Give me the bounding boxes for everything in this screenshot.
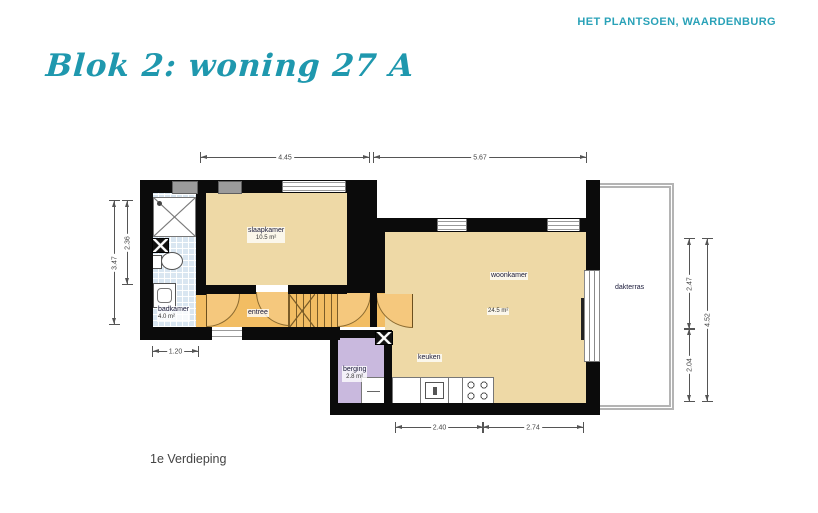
room-label-keuken: keuken: [417, 354, 442, 362]
page-title: Blok 2: woning 27 A: [45, 48, 416, 84]
dimension-value: 3.47: [111, 254, 118, 272]
room-label-berging: berging 2.8 m²: [342, 366, 367, 382]
dimension-top-left: 4.45: [200, 152, 370, 163]
floor-label: 1e Verdieping: [150, 452, 226, 466]
wall: [242, 327, 340, 340]
vent-box-icon: [152, 238, 169, 253]
sliding-door-panel: [581, 298, 584, 340]
terrace-sliding-door: [584, 270, 600, 362]
room-area: 24.5 m²: [488, 308, 508, 315]
dimension-value: 5.67: [471, 154, 489, 161]
dimension-value: 1.20: [167, 348, 185, 355]
window: [547, 219, 580, 231]
dakterras-terrace: [598, 183, 674, 410]
room-name: slaapkamer: [248, 227, 284, 234]
wall: [330, 403, 598, 415]
dimension-badkamer-width: 1.20: [152, 346, 199, 357]
room-area: 4.0 m²: [158, 314, 189, 321]
meter-box-icon: [375, 331, 393, 345]
room-area: 2.8 m²: [343, 374, 366, 381]
dimension-right-outer: 4.52: [702, 238, 713, 402]
room-area-woonkamer: 24.5 m²: [487, 308, 509, 315]
entrance-door-opening: [212, 328, 242, 339]
dimension-value: 4.45: [276, 154, 294, 161]
window: [282, 181, 346, 192]
room-label-woonkamer: woonkamer: [490, 272, 528, 280]
dimension-left-inner: 2.36: [122, 200, 133, 285]
dimension-bottom-left: 2.40: [395, 422, 484, 433]
room-label-badkamer: badkamer 4.0 m²: [157, 306, 190, 322]
window: [172, 181, 198, 194]
dimension-bottom-right: 2.74: [482, 422, 584, 433]
wall: [330, 330, 338, 403]
dimension-left-outer: 3.47: [109, 200, 120, 325]
wall: [140, 327, 212, 340]
kitchen-sink-icon: [421, 378, 449, 404]
window: [218, 181, 242, 194]
dimension-top-right: 5.67: [373, 152, 587, 163]
room-name: berging: [343, 366, 366, 373]
wall: [586, 180, 600, 270]
floorplan-page: HET PLANTSOEN, WAARDENBURG Blok 2: wonin…: [0, 0, 818, 513]
dimension-value: 2.04: [686, 356, 693, 374]
stove-burners-icon: [463, 378, 493, 404]
dimension-value: 4.52: [704, 311, 711, 329]
room-label-entree: entree: [247, 309, 269, 317]
kitchen-counter: [392, 377, 494, 405]
room-name: keuken: [418, 354, 441, 361]
dimension-value: 2.40: [431, 424, 449, 431]
room-name: woonkamer: [491, 272, 527, 279]
shower-icon: [153, 197, 196, 237]
dimension-value: 2.36: [124, 234, 131, 252]
window: [437, 219, 467, 231]
dimension-right-bottom: 2.04: [684, 328, 695, 402]
counter-section: [449, 378, 463, 404]
room-label-slaapkamer: slaapkamer 10.5 m²: [247, 227, 285, 243]
wall: [140, 180, 153, 340]
counter-section: [393, 378, 421, 404]
washbasin-icon: [153, 283, 176, 308]
room-area: 10.5 m²: [248, 235, 284, 242]
room-label-dakterras: dakterras: [614, 284, 645, 292]
wall: [196, 192, 206, 295]
room-name: badkamer: [158, 306, 189, 313]
wall: [288, 285, 347, 294]
project-name: HET PLANTSOEN, WAARDENBURG: [577, 16, 776, 28]
staircase: [288, 293, 338, 329]
wall: [206, 285, 256, 294]
toilet-icon: [161, 252, 183, 270]
wall: [370, 290, 377, 327]
room-name: entree: [248, 309, 268, 316]
dimension-value: 2.74: [524, 424, 542, 431]
dimension-right-top: 2.47: [684, 238, 695, 330]
dimension-value: 2.47: [686, 275, 693, 293]
